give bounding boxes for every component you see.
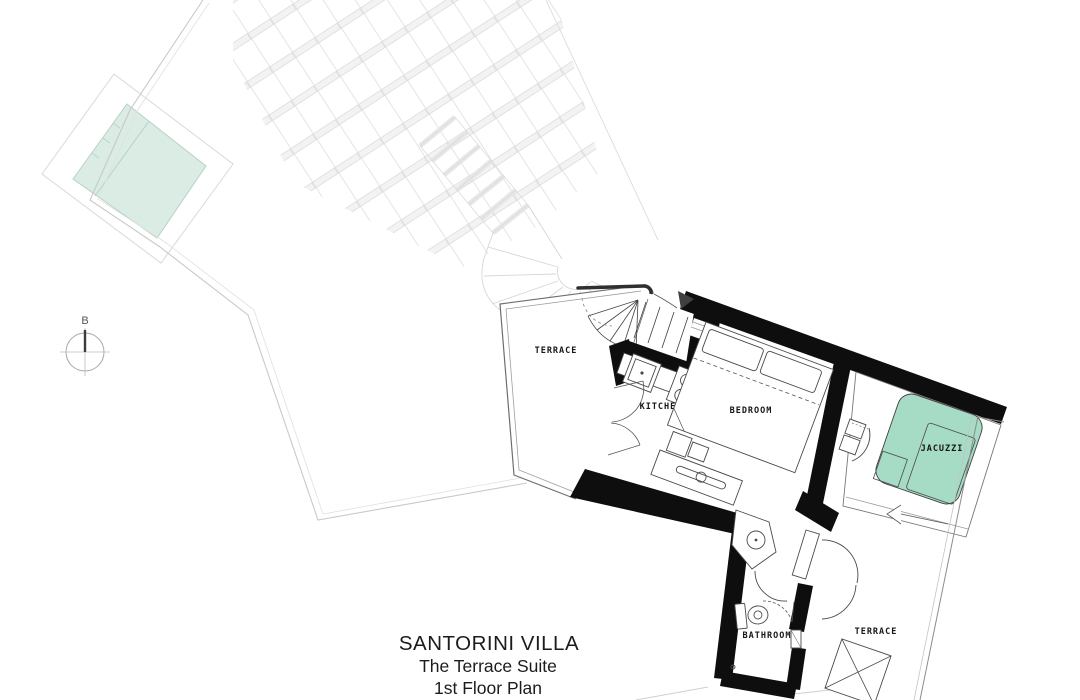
bathroom-label: BATHROOM (743, 631, 792, 641)
jacuzzi-label: JACUZZI (921, 444, 964, 454)
plan-floor-line: 1st Floor Plan (434, 678, 542, 698)
title-block: SANTORINI VILLA The Terrace Suite 1st Fl… (399, 632, 579, 698)
pool-deck (42, 74, 233, 263)
terrace-upper-room: TERRACE (500, 285, 655, 499)
terrace-lower-label: TERRACE (855, 627, 898, 637)
bedroom-label: BEDROOM (730, 406, 773, 416)
terrace-upper-label: TERRACE (535, 346, 578, 356)
floor-plan: B TERRACE (0, 0, 1080, 700)
plan-subtitle: The Terrace Suite (419, 656, 557, 676)
skylight-square (825, 639, 891, 700)
plan-title: SANTORINI VILLA (399, 632, 579, 655)
section-marker: B (60, 315, 110, 376)
bedroom-deck-door (839, 419, 870, 461)
toilet (735, 601, 769, 629)
section-marker-label: B (81, 315, 88, 327)
duct (791, 630, 801, 648)
pool (73, 104, 206, 238)
pergola-grid (233, 0, 602, 268)
